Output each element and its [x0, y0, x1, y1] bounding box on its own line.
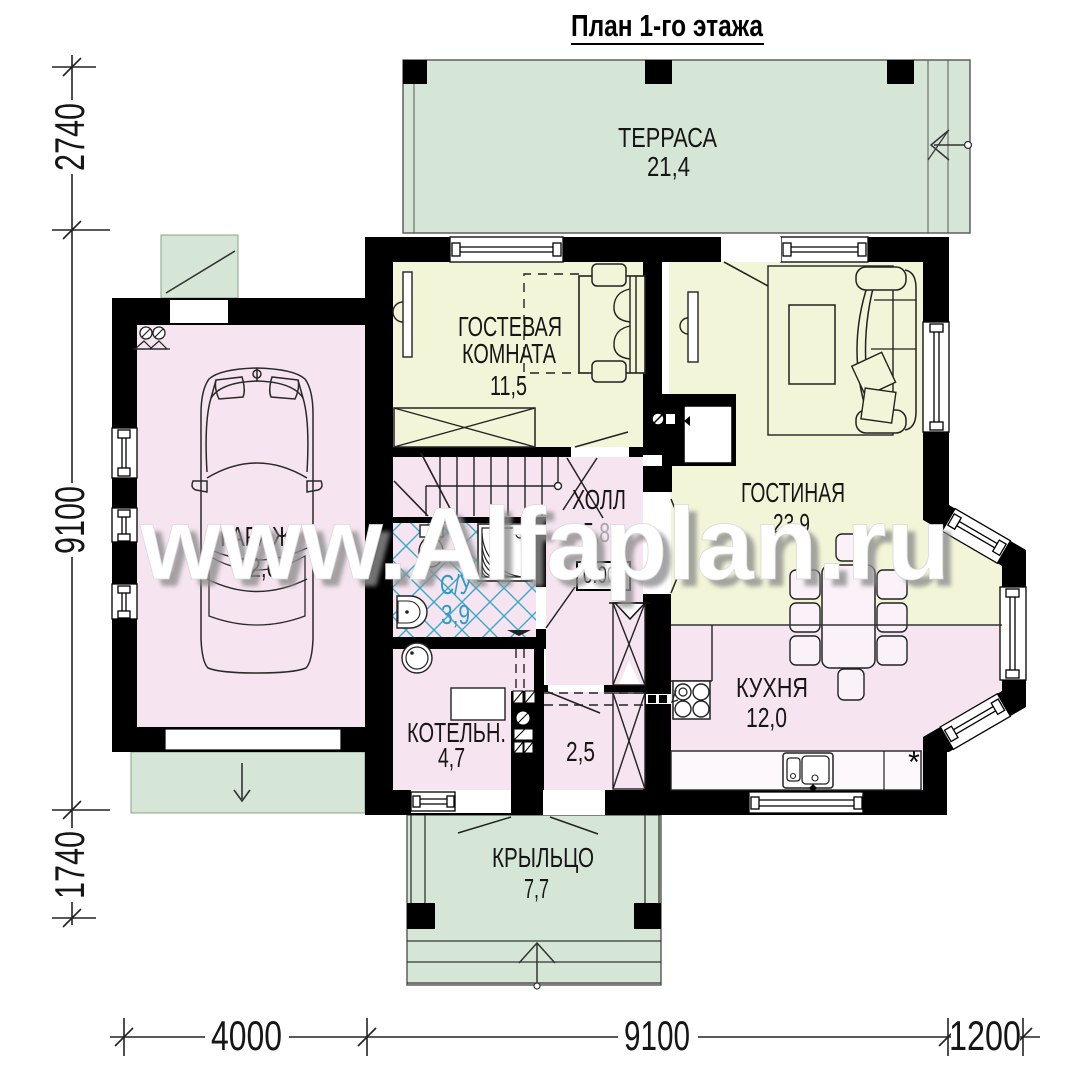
svg-text:9100: 9100	[46, 486, 93, 554]
svg-text:*: *	[908, 746, 920, 779]
svg-text:9100: 9100	[624, 1012, 690, 1059]
svg-text:КУХНЯ: КУХНЯ	[736, 672, 808, 703]
svg-text:2740: 2740	[46, 103, 93, 171]
svg-text:КРЫЛЬЦО: КРЫЛЬЦО	[492, 842, 594, 873]
svg-text:www.Alfaplan.ru: www.Alfaplan.ru	[139, 486, 950, 601]
svg-text:4,7: 4,7	[438, 742, 465, 773]
svg-text:1200: 1200	[949, 1012, 1021, 1059]
svg-text:21,4: 21,4	[647, 151, 690, 182]
svg-text:2,5: 2,5	[566, 736, 595, 767]
svg-text:4000: 4000	[211, 1012, 282, 1059]
svg-text:ТЕРРАСА: ТЕРРАСА	[618, 122, 717, 153]
svg-text:План 1-го этажа: План 1-го этажа	[571, 8, 764, 43]
svg-text:12,0: 12,0	[746, 702, 787, 733]
svg-text:11,5: 11,5	[490, 370, 527, 401]
svg-text:7,7: 7,7	[524, 873, 549, 904]
svg-text:1740: 1740	[46, 831, 93, 899]
svg-text:КОМНАТА: КОМНАТА	[462, 338, 556, 369]
